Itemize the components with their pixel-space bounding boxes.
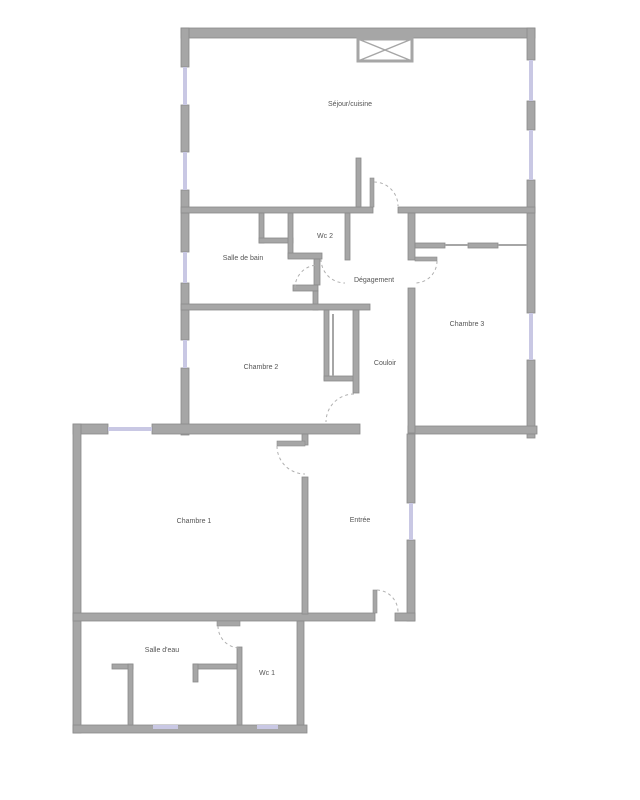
wall-segment — [407, 434, 415, 503]
wall-segment — [408, 213, 415, 260]
window — [529, 60, 533, 101]
wall-segment — [302, 477, 308, 614]
door-arc — [374, 182, 398, 206]
exterior-walls — [73, 28, 537, 733]
wall-segment — [128, 664, 133, 725]
room-label-sejour: Séjour/cuisine — [328, 101, 372, 108]
closet-door-line — [498, 244, 527, 246]
wall-segment — [324, 310, 329, 380]
window — [529, 130, 533, 180]
wall-segment — [314, 259, 320, 285]
wall-segment — [353, 310, 359, 393]
doors — [217, 178, 437, 648]
wall-segment — [527, 180, 535, 313]
wall-segment — [73, 424, 81, 733]
door-arc — [321, 259, 345, 283]
room-label-wc1: Wc 1 — [259, 670, 275, 677]
wall-segment — [395, 613, 415, 621]
window — [108, 427, 152, 431]
wall-segment — [468, 243, 498, 248]
floor-plan-page: Séjour/cuisine Wc 2 Salle de bain Dégage… — [0, 0, 640, 800]
chimney-vent — [358, 39, 412, 61]
wall-segment — [345, 213, 350, 260]
wall-segment — [408, 426, 537, 434]
door-leaf — [370, 178, 374, 207]
closet-door-line — [332, 314, 334, 376]
window — [183, 152, 187, 190]
interior-walls — [112, 158, 535, 725]
window — [153, 725, 178, 729]
floor-plan: Séjour/cuisine Wc 2 Salle de bain Dégage… — [0, 0, 640, 800]
room-label-chambre2: Chambre 2 — [244, 364, 279, 371]
room-label-wc2: Wc 2 — [317, 233, 333, 240]
windows — [108, 60, 533, 729]
door-arc — [218, 626, 240, 648]
room-labels: Séjour/cuisine Wc 2 Salle de bain Dégage… — [145, 101, 485, 677]
wall-segment — [415, 243, 445, 248]
door-leaf — [373, 590, 377, 613]
window — [529, 313, 533, 360]
door-leaf — [277, 441, 305, 446]
wall-segment — [181, 283, 189, 340]
door-leaf — [415, 257, 437, 261]
wall-segment — [181, 28, 189, 67]
door-arc — [415, 261, 437, 283]
wall-segment — [288, 213, 293, 258]
wall-segment — [408, 288, 415, 433]
door-arc — [326, 394, 354, 422]
wall-segment — [152, 424, 360, 434]
wall-segment — [193, 664, 237, 669]
room-label-salle-deau: Salle d'eau — [145, 647, 180, 654]
closet-door-line — [445, 244, 468, 246]
wall-segment — [293, 285, 318, 291]
room-label-degagement: Dégagement — [354, 277, 394, 284]
wall-segment — [527, 101, 535, 130]
room-label-entree: Entrée — [350, 517, 371, 524]
wall-segment — [288, 253, 322, 259]
wall-segment — [407, 540, 415, 621]
wall-segment — [356, 158, 361, 207]
window — [409, 503, 413, 540]
room-label-salle-de-bain: Salle de bain — [223, 255, 264, 262]
wall-segment — [398, 207, 535, 213]
wall-segment — [181, 105, 189, 152]
wall-segment — [181, 28, 535, 38]
wall-segment — [237, 647, 242, 725]
window — [257, 725, 278, 729]
door-arc — [277, 446, 305, 474]
wall-segment — [181, 304, 370, 310]
wall-segment — [181, 190, 189, 252]
room-label-chambre1: Chambre 1 — [177, 518, 212, 525]
window — [183, 67, 187, 105]
window — [183, 252, 187, 283]
wall-segment — [527, 28, 535, 60]
wall-segment — [181, 207, 373, 213]
wall-segment — [193, 664, 198, 682]
room-label-couloir: Couloir — [374, 360, 397, 367]
wall-segment — [297, 621, 304, 725]
room-label-chambre3: Chambre 3 — [450, 321, 485, 328]
door-arc — [377, 590, 398, 612]
window — [183, 340, 187, 368]
door-leaf — [217, 621, 240, 626]
wall-segment — [73, 613, 375, 621]
